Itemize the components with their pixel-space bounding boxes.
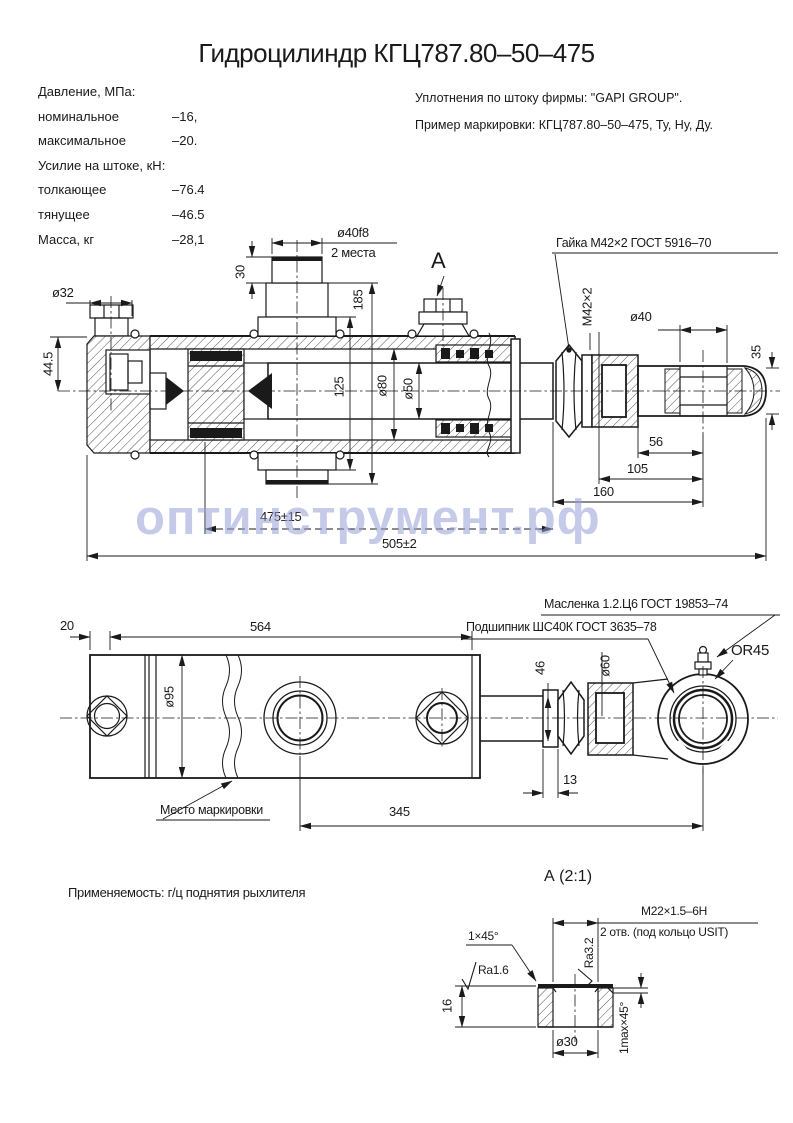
dim-sphere-radius: OR45 [731, 643, 769, 658]
dim-564: 564 [250, 620, 271, 633]
dim-chamfer: 1×45° [468, 930, 498, 942]
dim-shank-od: ø60 [599, 655, 612, 677]
dim-left-offset: 44.5 [42, 352, 55, 376]
spec-row: Усилие на штоке, кН: [38, 158, 298, 183]
spec-row: толкающее–76.4 [38, 182, 298, 207]
dim-ports-span: 185 [352, 290, 365, 311]
dim-ra-side: Ra1.6 [478, 964, 509, 976]
detail-a-geometry [538, 974, 613, 1042]
watermark: оптинструмент.рф [135, 494, 601, 543]
spec-row: тянущее–46.5 [38, 207, 298, 232]
dim-46: 46 [534, 661, 547, 675]
dim-56: 56 [649, 435, 663, 448]
view-a-marker: А [431, 250, 446, 272]
dim-thread-m42: М42×2 [581, 288, 594, 327]
spec-row: Масса, кг–28,1 [38, 232, 298, 257]
dim-clevis-width: 35 [750, 345, 763, 359]
callout-greaser: Масленка 1.2.Ц6 ГОСТ 19853–74 [544, 598, 728, 611]
spec-table: Давление, МПа: номинальное–16, максималь… [38, 84, 298, 256]
drawing-sheet: Гидроцилиндр КГЦ787.80–50–475 Давление, … [0, 0, 793, 1123]
callout-bearing: Подшипник ШС40К ГОСТ 3635–78 [466, 621, 656, 634]
dim-tube-od: ø95 [163, 686, 176, 708]
dim-thread-m22: М22×1.5–6Н [641, 905, 707, 917]
dim-345: 345 [389, 805, 410, 818]
dim-ring-bore: ø30 [556, 1035, 578, 1048]
spec-row: максимальное–20. [38, 133, 298, 158]
dim-20: 20 [60, 619, 74, 632]
detail-a-title: А (2:1) [544, 869, 592, 885]
dim-port-height: 30 [234, 265, 247, 279]
marking-place-label: Место маркировки [160, 804, 263, 817]
page-title: Гидроцилиндр КГЦ787.80–50–475 [0, 40, 793, 66]
dim-left-port-diameter: ø32 [52, 286, 74, 299]
note-seals: Уплотнения по штоку фирмы: "GAPI GROUP". [415, 92, 682, 105]
dim-flange-span: 125 [333, 377, 346, 398]
dim-chamfer-max: 1max×45° [618, 1002, 630, 1054]
main-view-geometry [87, 257, 766, 484]
spec-row: номинальное–16, [38, 109, 298, 134]
application-note: Применяемость: г/ц поднятия рыхлителя [68, 886, 305, 899]
dim-ra-top: Ra3.2 [583, 938, 595, 969]
dim-105: 105 [627, 462, 648, 475]
dim-ring-height: 16 [441, 999, 454, 1013]
callout-nut: Гайка М42×2 ГОСТ 5916–70 [556, 237, 711, 250]
note-marking-example: Пример маркировки: КГЦ787.80–50–475, Ту,… [415, 119, 713, 132]
dim-thread-note: 2 отв. (под кольцо USIT) [600, 926, 728, 938]
spec-row: Давление, МПа: [38, 84, 298, 109]
dim-rod-diameter: ø50 [402, 378, 415, 400]
dim-port-diameter: ø40f8 [337, 226, 369, 239]
dim-port-places: 2 места [331, 246, 375, 259]
dim-bore-diameter: ø80 [376, 375, 389, 397]
dim-13: 13 [563, 773, 577, 786]
dim-pin-bore: ø40 [630, 310, 652, 323]
side-view-geometry [87, 647, 748, 779]
